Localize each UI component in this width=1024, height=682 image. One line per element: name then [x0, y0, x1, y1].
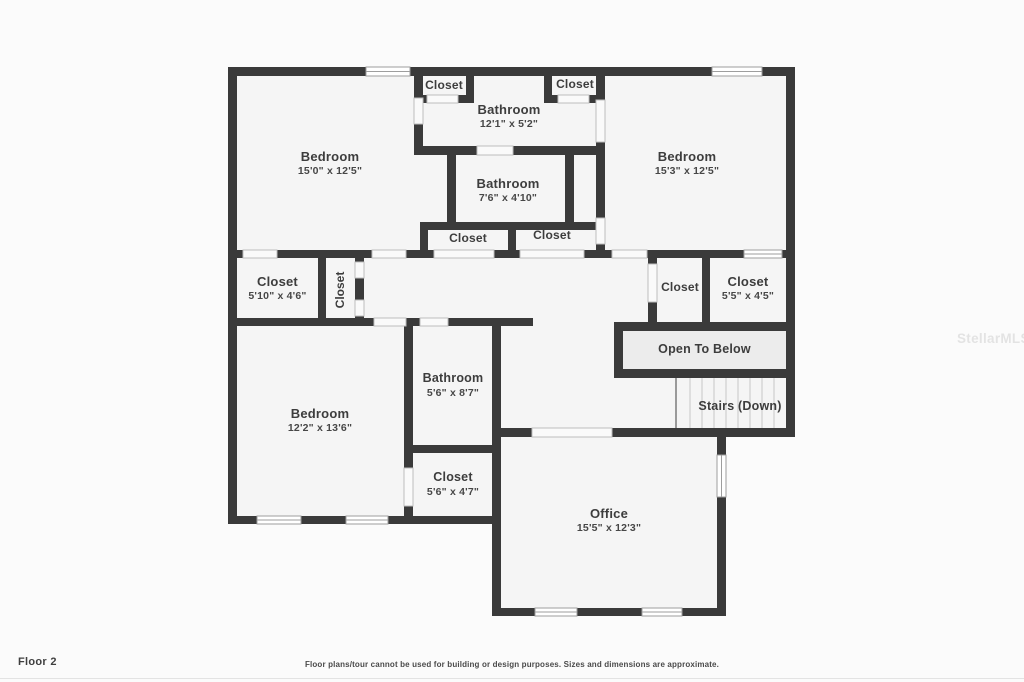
floorplan-page: Bedroom 15'0" x 12'5" Closet Bathroom 12…	[0, 0, 1024, 682]
room-label-closet-hall-vertical: Closet	[331, 250, 349, 330]
room-name: Closet	[333, 272, 347, 309]
disclaimer-text: Floor plans/tour cannot be used for buil…	[0, 660, 1024, 669]
footer-divider	[0, 678, 1024, 679]
floorplan-drawing	[0, 0, 1024, 682]
open-to-below-area	[623, 331, 786, 369]
stellar-mls-watermark: StellarMLS	[957, 331, 1024, 346]
